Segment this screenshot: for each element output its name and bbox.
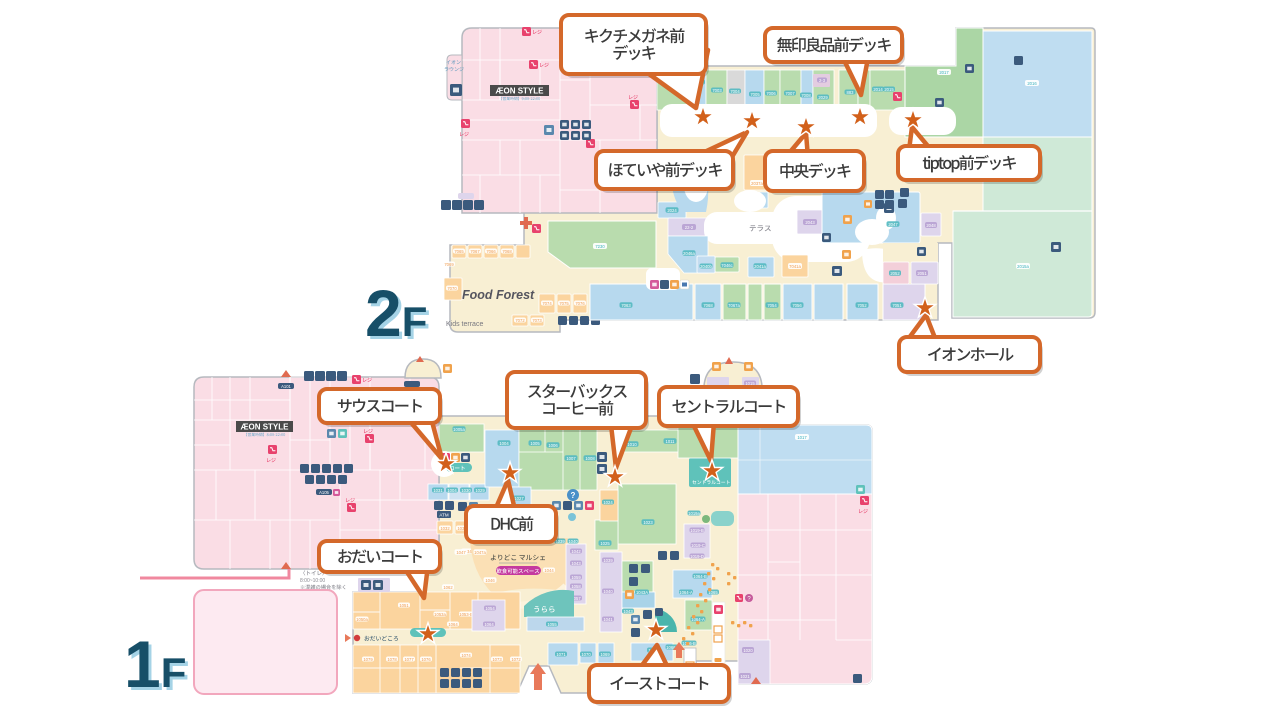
svg-text:1077: 1077	[404, 657, 414, 662]
svg-text:1051: 1051	[399, 603, 409, 608]
svg-text:1039: 1039	[603, 558, 613, 563]
svg-text:7065: 7065	[454, 249, 464, 254]
svg-text:1072: 1072	[511, 657, 521, 662]
svg-text:1006: 1006	[548, 443, 558, 448]
svg-text:2017: 2017	[939, 70, 949, 75]
svg-text:7041a: 7041a	[789, 264, 801, 269]
svg-text:1043: 1043	[571, 561, 581, 566]
svg-text:2051: 2051	[917, 271, 927, 276]
svg-text:1017: 1017	[797, 435, 807, 440]
svg-text:1064: 1064	[484, 622, 494, 627]
svg-text:1005a: 1005a	[453, 427, 465, 432]
svg-text:7230: 7230	[595, 244, 605, 249]
svg-text:7052: 7052	[857, 303, 867, 308]
svg-text:7076: 7076	[575, 301, 585, 306]
svg-text:1064-A: 1064-A	[679, 590, 693, 595]
svg-text:1019-C: 1019-C	[691, 543, 705, 548]
svg-text:2014: 2014	[873, 87, 883, 92]
svg-text:1007: 1007	[566, 456, 576, 461]
svg-text:1043A: 1043A	[636, 590, 648, 595]
svg-text:1019-D: 1019-D	[690, 554, 704, 559]
svg-text:7075: 7075	[559, 301, 569, 306]
svg-text:1076: 1076	[421, 657, 431, 662]
svg-text:2F: 2F	[365, 276, 427, 350]
svg-text:22-2: 22-2	[685, 225, 694, 230]
svg-text:1042: 1042	[571, 549, 581, 554]
svg-text:2047: 2047	[888, 222, 898, 227]
svg-text:2037a: 2037a	[751, 181, 763, 186]
svg-text:1008: 1008	[585, 456, 595, 461]
svg-text:1050a: 1050a	[356, 617, 368, 622]
svg-text:1064: 1064	[448, 622, 458, 627]
svg-text:1058: 1058	[571, 584, 581, 589]
svg-text:2015a: 2015a	[1017, 264, 1029, 269]
svg-text:7004: 7004	[730, 89, 740, 94]
svg-text:2029: 2029	[818, 95, 828, 100]
svg-text:7069: 7069	[444, 262, 454, 267]
svg-text:7056: 7056	[792, 303, 802, 308]
svg-text:2016: 2016	[1027, 81, 1037, 86]
svg-text:1040: 1040	[568, 539, 578, 544]
svg-text:1011: 1011	[665, 439, 675, 444]
svg-text:1073: 1073	[492, 657, 502, 662]
svg-text:1078: 1078	[387, 657, 397, 662]
svg-text:1004: 1004	[499, 441, 509, 446]
svg-text:7070: 7070	[447, 286, 457, 291]
svg-text:2-3: 2-3	[819, 78, 826, 83]
svg-text:1070: 1070	[581, 652, 591, 657]
svg-text:1021: 1021	[740, 674, 750, 679]
svg-text:7074: 7074	[542, 301, 552, 306]
svg-text:?: ?	[571, 491, 576, 500]
svg-text:1053-B: 1053-B	[459, 612, 473, 617]
svg-text:2015: 2015	[884, 87, 894, 92]
svg-text:1030: 1030	[461, 488, 471, 493]
svg-text:883: 883	[847, 90, 855, 95]
svg-text:A105: A105	[319, 490, 329, 495]
svg-text:2024: 2024	[667, 208, 677, 213]
svg-text:7072: 7072	[515, 318, 525, 323]
svg-text:1040: 1040	[603, 589, 613, 594]
svg-text:7073: 7073	[532, 318, 542, 323]
svg-text:7046c: 7046c	[721, 263, 732, 268]
svg-text:7054: 7054	[767, 303, 777, 308]
svg-text:1055: 1055	[547, 622, 557, 627]
svg-text:7003: 7003	[712, 88, 722, 93]
svg-text:1069: 1069	[600, 652, 610, 657]
svg-text:ATM: ATM	[439, 513, 448, 518]
svg-text:7007: 7007	[785, 91, 795, 96]
svg-text:7008: 7008	[801, 93, 811, 98]
svg-text:1029: 1029	[475, 488, 485, 493]
svg-text:1071: 1071	[556, 652, 566, 657]
svg-text:1043: 1043	[623, 609, 633, 614]
svg-text:2043: 2043	[805, 220, 815, 225]
svg-text:Food Forest: Food Forest	[462, 288, 535, 302]
svg-text:1024: 1024	[603, 500, 613, 505]
svg-text:1019-B: 1019-B	[690, 528, 704, 533]
svg-text:1010: 1010	[627, 442, 637, 447]
svg-text:2040b: 2040b	[700, 264, 712, 269]
svg-text:1F: 1F	[124, 627, 186, 701]
svg-text:7067a: 7067a	[728, 303, 740, 308]
svg-text:8:00~10:00: 8:00~10:00	[300, 578, 325, 584]
svg-text:7068: 7068	[703, 303, 713, 308]
svg-text:ÆON STYLE: ÆON STYLE	[495, 87, 544, 96]
svg-text:2041a: 2041a	[754, 264, 766, 269]
svg-text:2046a: 2046a	[683, 251, 695, 256]
svg-text:1054: 1054	[485, 606, 495, 611]
svg-text:1032: 1032	[440, 526, 450, 531]
svg-text:2052: 2052	[890, 271, 900, 276]
svg-text:1023: 1023	[643, 520, 653, 525]
svg-text:A101: A101	[281, 384, 291, 389]
svg-text:1074: 1074	[461, 653, 471, 658]
svg-text:7006: 7006	[766, 91, 776, 96]
svg-text:1059: 1059	[571, 575, 581, 580]
svg-text:1020: 1020	[743, 648, 753, 653]
svg-text:7068: 7068	[502, 249, 512, 254]
svg-text:1046: 1046	[485, 578, 495, 583]
svg-text:1025: 1025	[600, 541, 610, 546]
svg-text:1019a: 1019a	[688, 511, 700, 516]
svg-text:1004: 1004	[447, 488, 457, 493]
svg-text:1044: 1044	[544, 568, 554, 573]
svg-text:1005: 1005	[530, 441, 540, 446]
svg-text:1047a: 1047a	[474, 550, 486, 555]
svg-text:1064-B: 1064-B	[693, 574, 707, 579]
svg-text:7066: 7066	[486, 249, 496, 254]
svg-text:Kids terrace: Kids terrace	[446, 321, 483, 328]
svg-text:1027: 1027	[514, 496, 524, 501]
svg-text:1031: 1031	[433, 488, 443, 493]
svg-text:1041: 1041	[603, 617, 613, 622]
svg-text:1053a: 1053a	[434, 612, 446, 617]
svg-text:7051: 7051	[892, 303, 902, 308]
svg-text:1079: 1079	[363, 657, 373, 662]
svg-text:2048: 2048	[926, 223, 936, 228]
svg-text:ÆON STYLE: ÆON STYLE	[240, 423, 289, 432]
svg-text:1047: 1047	[456, 550, 466, 555]
svg-text:1062: 1062	[443, 585, 453, 590]
svg-text:7067: 7067	[470, 249, 480, 254]
svg-text:7063: 7063	[621, 303, 631, 308]
svg-text:7005: 7005	[750, 92, 760, 97]
